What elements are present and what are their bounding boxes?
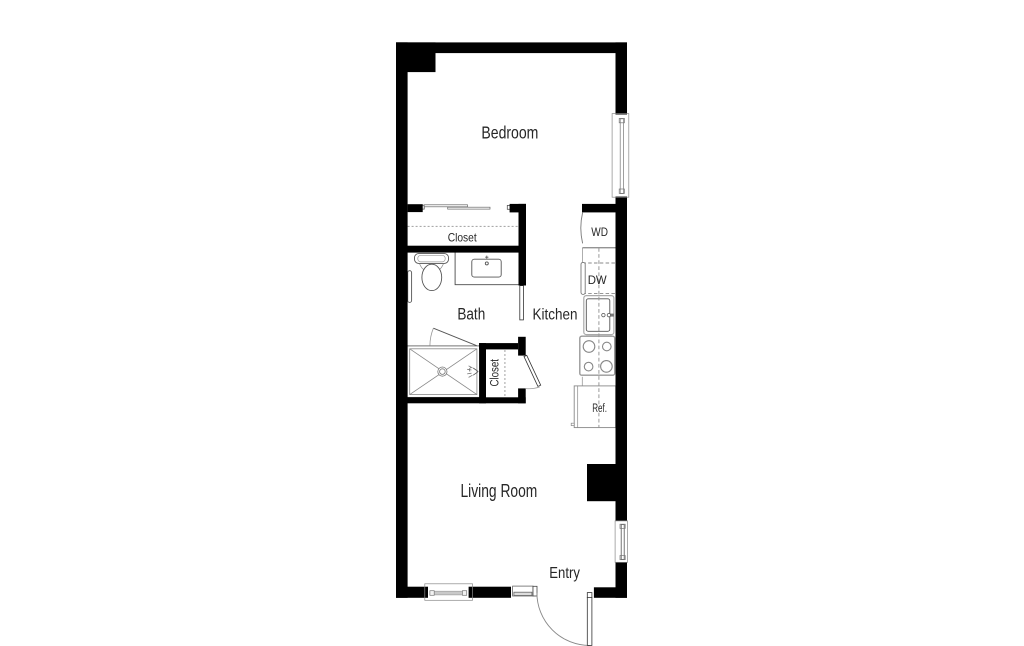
svg-text:Bath: Bath	[457, 305, 485, 324]
svg-text:Bedroom: Bedroom	[481, 123, 538, 143]
svg-text:Entry: Entry	[549, 565, 580, 582]
svg-text:Living Room: Living Room	[461, 481, 538, 501]
svg-text:DW: DW	[588, 273, 608, 287]
svg-text:Kitchen: Kitchen	[533, 306, 578, 323]
svg-text:Closet: Closet	[490, 358, 502, 386]
svg-text:WD: WD	[591, 225, 608, 239]
svg-text:Closet: Closet	[448, 230, 478, 244]
svg-text:Ref.: Ref.	[592, 403, 607, 415]
